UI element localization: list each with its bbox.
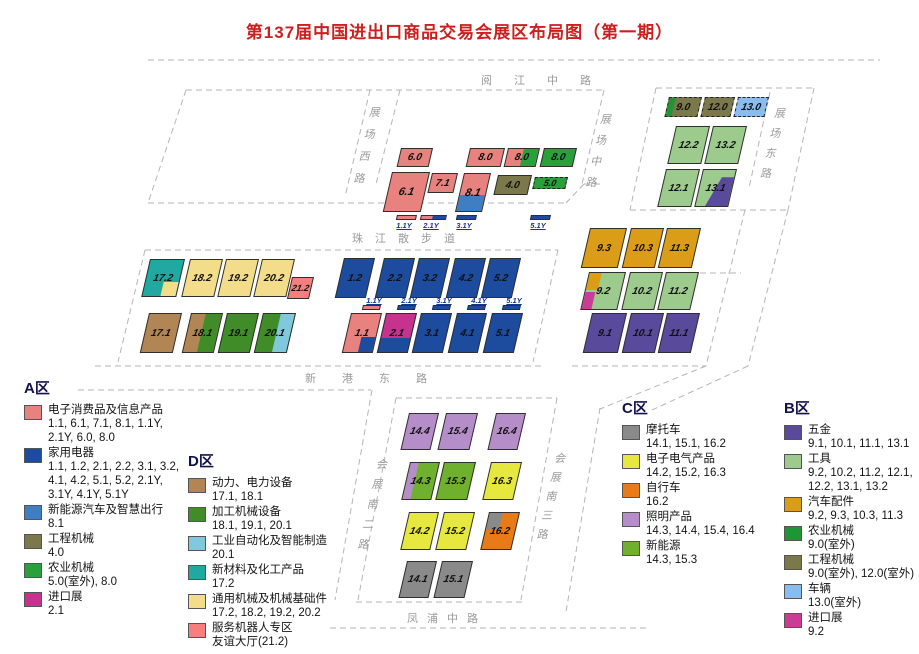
legend-category-halls: 友谊大厅(21.2): [212, 635, 293, 649]
legend-zone-B-title: B区: [784, 397, 914, 418]
legend-color-swatch: [622, 541, 640, 556]
legend-color-swatch: [784, 613, 802, 628]
hall-number-label: 9.2: [595, 286, 611, 297]
legend-category-halls: 9.0(室外): [808, 538, 855, 552]
legend-category-name: 新材料及化工产品: [212, 563, 304, 577]
hall-number-label: 11.1: [668, 328, 689, 339]
legend-color-swatch: [24, 592, 42, 607]
legend-color-swatch: [784, 497, 802, 512]
hall-number-label: 2.1Y: [416, 221, 446, 230]
legend-category-name: 照明产品: [646, 510, 755, 524]
hall-number-label: 12.2: [678, 140, 700, 151]
legend-color-swatch: [188, 536, 206, 551]
legend-color-swatch: [24, 505, 42, 520]
legend-color-swatch: [24, 534, 42, 549]
hall-number-label: 17.2: [152, 273, 174, 284]
hall-number-label: 16.4: [496, 426, 518, 437]
hall-number-label: 11.3: [669, 243, 690, 254]
legend-entry: 新材料及化工产品17.2: [188, 563, 327, 591]
legend-entry: 服务机器人专区友谊大厅(21.2): [188, 621, 327, 649]
hall-8.0-2: 8.0: [504, 148, 540, 167]
legend-entry: 电子电气产品14.2, 15.2, 16.3: [622, 452, 755, 480]
legend-entry: 工具9.2, 10.2, 11.2, 12.1, 12.2, 13.1, 13.…: [784, 452, 914, 494]
legend-category-halls: 9.1, 10.1, 11.1, 13.1: [808, 437, 909, 451]
hall-number-label: 12.1: [668, 183, 690, 194]
road-dashed-line: [566, 408, 600, 612]
legend-zone-B: B区五金9.1, 10.1, 11.1, 13.1工具9.2, 10.2, 11…: [784, 397, 914, 640]
legend-color-swatch: [622, 454, 640, 469]
legend-entry: 家用电器1.1, 1.2, 2.1, 2.2, 3.1, 3.2, 4.1, 4…: [24, 446, 179, 502]
hall-number-label: 10.2: [631, 286, 653, 297]
legend-category-name: 工业自动化及智能制造: [212, 534, 327, 548]
legend-category-name: 家用电器: [48, 446, 179, 460]
legend-color-swatch: [188, 623, 206, 638]
hall-number-label: 1.2: [347, 273, 363, 284]
legend-zone-D: D区动力、电力设备17.1, 18.1加工机械设备18.1, 19.1, 20.…: [188, 450, 327, 650]
legend-category-halls: 16.2: [646, 495, 681, 509]
legend-category-name: 通用机械及机械基础件: [212, 592, 327, 606]
legend-category-halls: 17.1, 18.1: [212, 490, 293, 504]
road-dashed-line: [630, 88, 656, 210]
hall-2.1Y-bar-10: [420, 215, 447, 220]
legend-color-swatch: [188, 594, 206, 609]
hall-number-label: 4.0: [504, 180, 520, 191]
hall-number-label: 1.1: [354, 328, 370, 339]
legend-category-halls: 9.0(室外), 12.0(室外): [808, 567, 914, 581]
legend-category-name: 新能源汽车及智慧出行: [48, 503, 163, 517]
road-dashed-line: [748, 210, 788, 366]
legend-entry: 工业自动化及智能制造20.1: [188, 534, 327, 562]
legend-entry: 农业机械5.0(室外), 8.0: [24, 561, 179, 589]
hall-number-label: 13.1: [705, 183, 727, 194]
hall-number-label: 12.0: [707, 102, 729, 113]
hall-5.0-8: 5.0: [532, 177, 568, 189]
hall-number-label: 19.2: [227, 273, 249, 284]
legend-color-swatch: [784, 555, 802, 570]
page-title: 第137届中国进出口商品交易会展区布局图（第一期）: [0, 18, 919, 43]
hall-number-label: 16.2: [489, 526, 511, 537]
hall-color-segment: [581, 292, 595, 309]
hall-number-label: 15.1: [442, 574, 464, 585]
legend-category-name: 加工机械设备: [212, 505, 292, 519]
hall-number-label: 8.0: [550, 152, 566, 163]
hall-3.1Y-bar-45: [432, 305, 451, 310]
legend-entry: 摩托车14.1, 15.1, 16.2: [622, 423, 755, 451]
hall-number-label: 5.1: [495, 328, 511, 339]
hall-number-label: 8.0: [514, 152, 530, 163]
legend-entry: 新能源汽车及智慧出行8.1: [24, 503, 179, 531]
road-label-yuejiang-middle-road: 阅江中路: [481, 72, 613, 88]
hall-number-label: 3.1: [424, 328, 440, 339]
hall-number-label: 14.3: [410, 476, 432, 487]
legend-entry: 车辆13.0(室外): [784, 582, 914, 610]
legend-category-name: 动力、电力设备: [212, 476, 293, 490]
legend-color-swatch: [24, 405, 42, 420]
hall-number-label: 6.1: [397, 186, 415, 198]
hall-number-label: 2.1: [389, 328, 405, 339]
legend-zone-D-title: D区: [188, 450, 327, 471]
legend-category-halls: 8.1: [48, 517, 163, 531]
hall-number-label: 5.1Y: [523, 221, 553, 230]
legend-zone-A: A区电子消费品及信息产品1.1, 6.1, 7.1, 8.1, 1.1Y, 2.…: [24, 377, 179, 619]
hall-4.1Y-bar-46: [467, 305, 486, 310]
hall-number-label: 15.3: [445, 476, 467, 487]
hall-color-segment: [161, 282, 179, 296]
hall-number-label: 2.2: [387, 273, 403, 284]
legend-category-halls: 14.2, 15.2, 16.3: [646, 466, 726, 480]
hall-number-label: 13.2: [715, 140, 737, 151]
road-dashed-line: [148, 90, 186, 203]
legend-entry: 自行车16.2: [622, 481, 755, 509]
legend-category-halls: 17.2: [212, 577, 304, 591]
legend-color-swatch: [784, 454, 802, 469]
legend-category-halls: 1.1, 6.1, 7.1, 8.1, 1.1Y, 2.1Y, 6.0, 8.0: [48, 417, 163, 445]
legend-entry: 工程机械9.0(室外), 12.0(室外): [784, 553, 914, 581]
legend-category-halls: 14.1, 15.1, 16.2: [646, 437, 726, 451]
legend-category-name: 农业机械: [808, 524, 855, 538]
legend-category-name: 摩托车: [646, 423, 726, 437]
hall-number-label: 1.1Y: [359, 296, 389, 305]
hall-color-segment: [666, 98, 676, 116]
hall-number-label: 1.1Y: [389, 221, 419, 230]
road-label-xingang-east-road: 新港东路: [305, 370, 453, 386]
legend-entry: 汽车配件9.2, 9.3, 10.3, 11.3: [784, 495, 914, 523]
hall-number-label: 15.4: [447, 426, 469, 437]
hall-number-label: 7.1: [434, 178, 450, 189]
legend-category-halls: 9.2, 9.3, 10.3, 11.3: [808, 509, 903, 523]
hall-8.0-1: 8.0: [466, 148, 505, 167]
exhibition-map: 阅江中路展场西路展场中路展场东路珠江散步道新港东路会展南二路会展南三路凤浦中路6…: [0, 0, 919, 654]
legend-entry: 通用机械及机械基础件17.2, 18.2, 19.2, 20.2: [188, 592, 327, 620]
hall-5.1Y-bar-47: [502, 305, 521, 310]
legend-category-halls: 14.3, 15.3: [646, 553, 697, 567]
legend-entry: 进口展2.1: [24, 590, 179, 618]
hall-number-label: 11.2: [667, 286, 688, 297]
legend-entry: 动力、电力设备17.1, 18.1: [188, 476, 327, 504]
legend-entry: 农业机械9.0(室外): [784, 524, 914, 552]
hall-number-label: 5.0: [543, 178, 558, 188]
legend-category-name: 工具: [808, 452, 913, 466]
legend-color-swatch: [622, 425, 640, 440]
hall-number-label: 15.2: [444, 526, 466, 537]
legend-category-halls: 18.1, 19.1, 20.1: [212, 519, 292, 533]
legend-category-name: 农业机械: [48, 561, 117, 575]
legend-category-name: 五金: [808, 423, 909, 437]
legend-category-name: 服务机器人专区: [212, 621, 293, 635]
hall-number-label: 20.2: [263, 273, 285, 284]
hall-number-label: 5.1Y: [499, 296, 529, 305]
legend-category-name: 汽车配件: [808, 495, 903, 509]
hall-number-label: 10.3: [632, 243, 654, 254]
hall-number-label: 8.0: [477, 152, 493, 163]
hall-6.0-0: 6.0: [397, 148, 433, 167]
legend-category-halls: 1.1, 1.2, 2.1, 2.2, 3.1, 3.2, 4.1, 4.2, …: [48, 460, 179, 502]
hall-number-label: 19.1: [227, 328, 249, 339]
legend-entry: 照明产品14.3, 14.4, 15.4, 16.4: [622, 510, 755, 538]
hall-12.0-14: 12.0: [700, 97, 735, 117]
legend-color-swatch: [622, 512, 640, 527]
hall-7.1-5: 7.1: [427, 173, 458, 193]
hall-1.1Y-bar-43: [362, 305, 381, 310]
legend-category-name: 自行车: [646, 481, 681, 495]
hall-number-label: 4.1: [459, 328, 475, 339]
legend-entry: 五金9.1, 10.1, 11.1, 13.1: [784, 423, 914, 451]
hall-number-label: 13.0: [740, 102, 762, 113]
legend-category-halls: 2.1: [48, 604, 83, 618]
legend-zone-C-title: C区: [622, 397, 755, 418]
legend-category-halls: 14.3, 14.4, 15.4, 16.4: [646, 524, 755, 538]
legend-color-swatch: [784, 526, 802, 541]
legend-category-name: 进口展: [808, 611, 843, 625]
hall-number-label: 3.2: [422, 273, 438, 284]
legend-category-halls: 17.2, 18.2, 19.2, 20.2: [212, 606, 327, 620]
legend-category-name: 电子消费品及信息产品: [48, 403, 163, 417]
hall-number-label: 20.1: [264, 328, 286, 339]
legend-category-name: 工程机械: [48, 532, 94, 546]
legend-color-swatch: [188, 478, 206, 493]
hall-number-label: 10.1: [632, 328, 654, 339]
hall-color-segment: [358, 337, 375, 352]
hall-3.1Y-bar-11: [456, 215, 477, 220]
legend-category-halls: 13.0(室外): [808, 596, 861, 610]
legend-category-name: 新能源: [646, 539, 697, 553]
hall-number-label: 14.2: [409, 526, 431, 537]
hall-number-label: 9.0: [675, 102, 691, 113]
hall-number-label: 3.1Y: [449, 221, 479, 230]
legend-zone-A-title: A区: [24, 377, 179, 398]
legend-category-name: 电子电气产品: [646, 452, 726, 466]
hall-number-label: 3.1Y: [429, 296, 459, 305]
legend-entry: 加工机械设备18.1, 19.1, 20.1: [188, 505, 327, 533]
road-dashed-line: [335, 390, 372, 600]
legend-category-halls: 4.0: [48, 546, 94, 560]
hall-number-label: 14.4: [409, 426, 431, 437]
legend-color-swatch: [24, 448, 42, 463]
hall-9.0-13: 9.0: [664, 97, 702, 117]
legend-category-name: 进口展: [48, 590, 83, 604]
hall-number-label: 14.1: [407, 574, 429, 585]
hall-number-label: 18.1: [191, 328, 213, 339]
legend-category-halls: 9.2: [808, 625, 843, 639]
road-dashed-line: [788, 88, 814, 210]
legend-zone-C: C区摩托车14.1, 15.1, 16.2电子电气产品14.2, 15.2, 1…: [622, 397, 755, 568]
hall-number-label: 2.1Y: [394, 296, 424, 305]
legend-color-swatch: [24, 563, 42, 578]
hall-number-label: 4.2: [458, 273, 474, 284]
legend-entry: 新能源14.3, 15.3: [622, 539, 755, 567]
hall-4.0-7: 4.0: [493, 175, 532, 195]
road-dashed-line: [533, 250, 558, 362]
legend-color-swatch: [188, 507, 206, 522]
canton-fair-layout-page: 阅江中路展场西路展场中路展场东路珠江散步道新港东路会展南二路会展南三路凤浦中路6…: [0, 0, 919, 654]
legend-entry: 进口展9.2: [784, 611, 914, 639]
hall-number-label: 9.3: [596, 243, 612, 254]
hall-color-segment: [432, 216, 446, 219]
legend-category-name: 车辆: [808, 582, 861, 596]
hall-13.0-15: 13.0: [733, 97, 769, 117]
hall-number-label: 18.2: [191, 273, 213, 284]
hall-number-label: 6.0: [407, 152, 423, 163]
hall-number-label: 16.3: [491, 476, 513, 487]
road-dashed-line: [706, 210, 745, 366]
legend-category-halls: 5.0(室外), 8.0: [48, 575, 117, 589]
legend-color-swatch: [784, 584, 802, 599]
road-label-fengpu-middle-road: 凤浦中路: [407, 610, 487, 626]
legend-category-halls: 9.2, 10.2, 11.2, 12.1, 12.2, 13.1, 13.2: [808, 466, 913, 494]
hall-1.1Y-bar-9: [396, 215, 417, 220]
hall-number-label: 4.1Y: [464, 296, 494, 305]
legend-category-name: 工程机械: [808, 553, 914, 567]
hall-5.1Y-bar-12: [530, 215, 551, 220]
hall-8.0-3: 8.0: [540, 148, 577, 167]
hall-2.1Y-bar-44: [397, 305, 416, 310]
legend-entry: 电子消费品及信息产品1.1, 6.1, 7.1, 8.1, 1.1Y, 2.1Y…: [24, 403, 179, 445]
legend-entry: 工程机械4.0: [24, 532, 179, 560]
road-label-zhujiang-promenade: 珠江散步道: [352, 230, 467, 246]
legend-category-halls: 20.1: [212, 548, 327, 562]
hall-number-label: 5.2: [493, 273, 509, 284]
legend-color-swatch: [622, 483, 640, 498]
road-dashed-line: [566, 184, 584, 203]
hall-number-label: 21.2: [291, 283, 311, 293]
legend-color-swatch: [188, 565, 206, 580]
hall-number-label: 17.1: [150, 328, 172, 339]
legend-color-swatch: [784, 425, 802, 440]
hall-number-label: 8.1: [464, 187, 482, 199]
hall-number-label: 9.1: [597, 328, 613, 339]
